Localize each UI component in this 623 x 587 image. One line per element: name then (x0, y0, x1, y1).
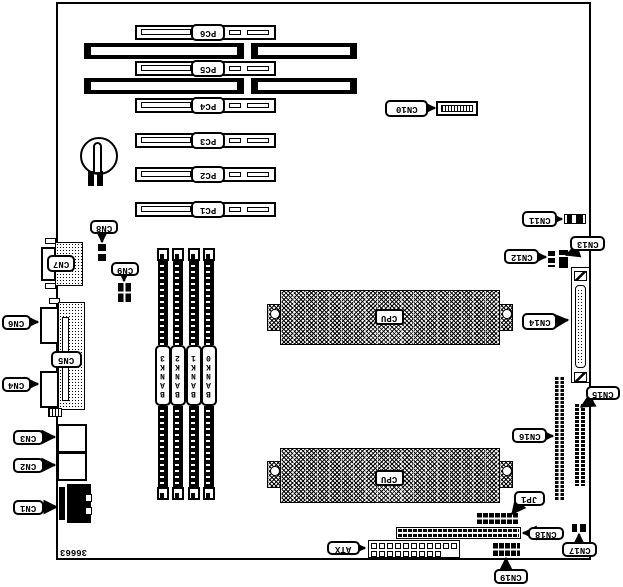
jp1-label: JP1 (514, 491, 545, 506)
cpu2-label: CPU (375, 470, 404, 486)
cn6-label: CN6 (2, 315, 31, 330)
cn2-label: CN2 (13, 458, 44, 473)
cn14-label: CN14 (522, 313, 557, 330)
cn1-label: CN1 (13, 500, 44, 515)
cn11-label: CN11 (522, 211, 557, 227)
cn18-label: CN18 (528, 527, 564, 540)
motherboard-diagram: PC6 PC5 PC4 PC3 PC2 PC1 BANK3 BANK2 BANK… (0, 0, 623, 587)
cn12-label: CN12 (504, 249, 539, 264)
cn3-label: CN3 (13, 430, 44, 445)
bank-label: BANK3 (155, 345, 171, 406)
cn9-label: CN9 (111, 262, 139, 276)
cn4-label: CN4 (2, 377, 31, 392)
part-number: 36663 (57, 545, 91, 558)
pci-slot-label: PC6 (191, 24, 225, 41)
bank-label: BANK1 (186, 345, 202, 406)
cn15-leader (581, 400, 593, 407)
atx-label: ATX (327, 541, 360, 555)
bank-label: BANK2 (170, 345, 186, 406)
cn8-label: CN8 (90, 220, 118, 234)
cn10-label: CN10 (385, 100, 428, 117)
cn15-label: CN15 (586, 386, 620, 400)
cn5-label: CN5 (51, 351, 82, 368)
cn13-label: CN13 (570, 236, 605, 251)
cpu1-label: CPU (375, 309, 404, 325)
bank-label: BANK0 (201, 345, 217, 406)
cn16-label: CN16 (512, 428, 547, 443)
pci-slot-label: PC3 (191, 132, 225, 149)
cn19-label: CN19 (494, 569, 528, 584)
cn17-label: CN17 (562, 542, 597, 557)
pci-slot-label: PC4 (191, 97, 225, 114)
cn7-label: CN7 (47, 255, 75, 272)
pci-slot-label: PC5 (191, 60, 225, 77)
pci-slot-label: PC2 (191, 166, 225, 183)
pci-slot-label: PC1 (191, 201, 225, 218)
cn13-leader (566, 251, 577, 255)
cn14-leader (556, 320, 568, 321)
